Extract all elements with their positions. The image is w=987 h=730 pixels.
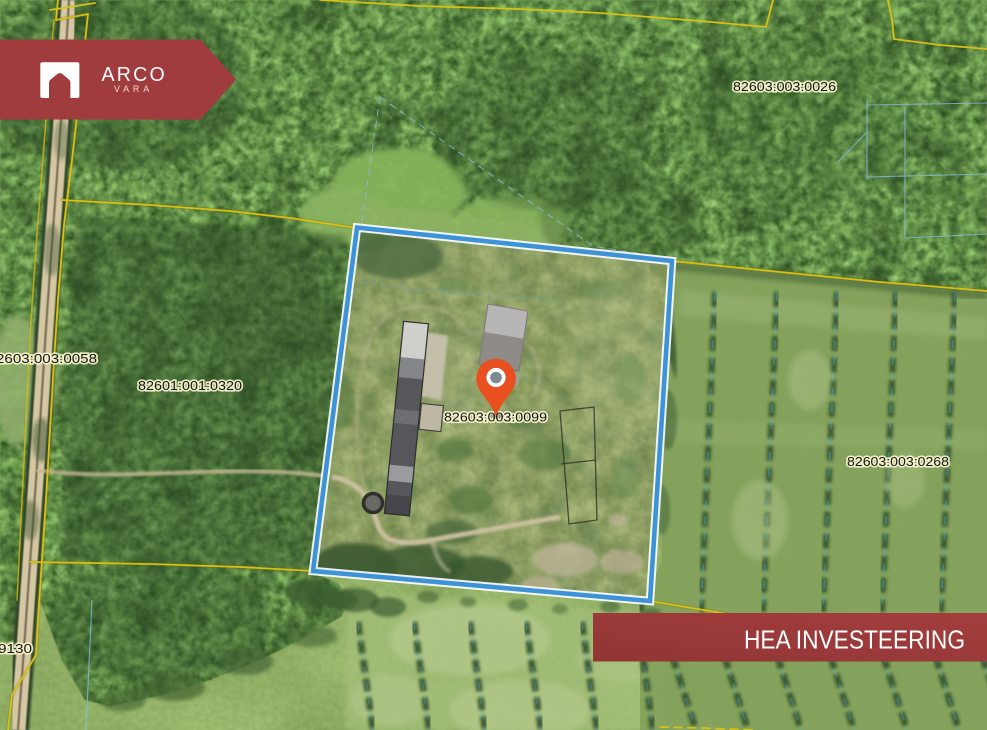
svg-text:82603:003:0026: 82603:003:0026 — [733, 79, 836, 94]
svg-text:HEA INVESTEERING: HEA INVESTEERING — [744, 625, 965, 655]
svg-text:9130: 9130 — [0, 641, 32, 656]
svg-text:82603:003:0268: 82603:003:0268 — [847, 454, 949, 469]
svg-text:82601:001:0320: 82601:001:0320 — [138, 378, 242, 393]
svg-text:VARA: VARA — [114, 84, 153, 94]
svg-text:2603:003:0058: 2603:003:0058 — [0, 351, 97, 366]
svg-text:ARCO: ARCO — [102, 64, 168, 86]
